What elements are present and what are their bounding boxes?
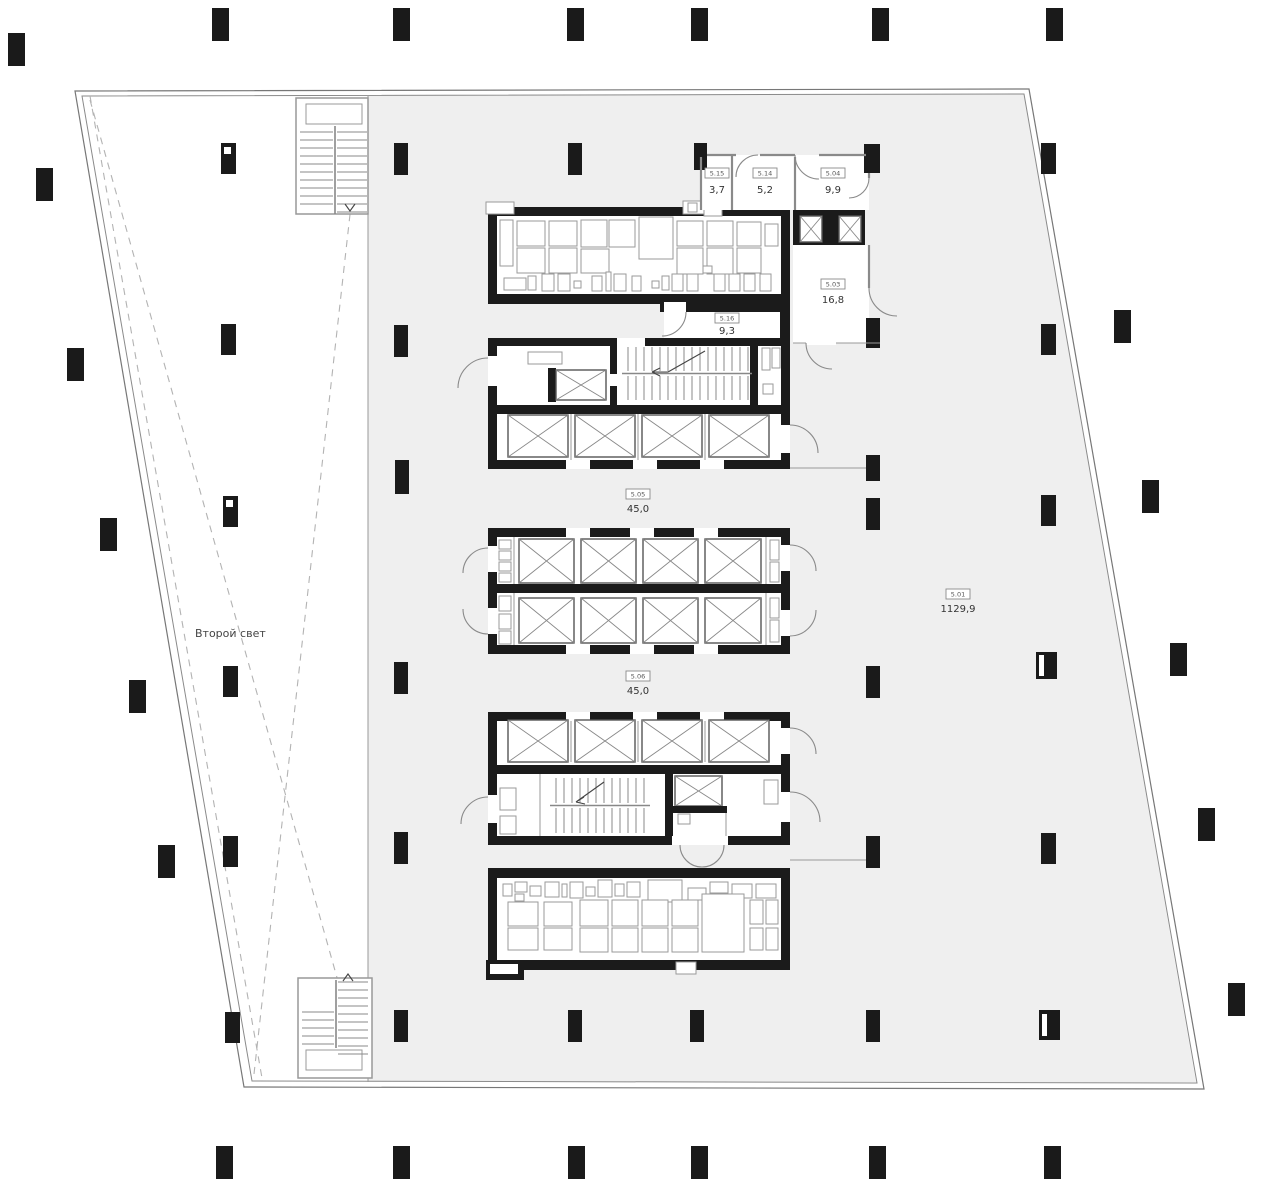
core-top-equipment-room bbox=[486, 201, 790, 304]
svg-text:9,9: 9,9 bbox=[825, 185, 841, 196]
svg-text:9,3: 9,3 bbox=[719, 326, 735, 337]
floor-plan-page: 5.15 3,7 5.14 5,2 5.04 9,9 5.03 16,8 5.1… bbox=[0, 0, 1280, 1180]
svg-text:5.01: 5.01 bbox=[951, 591, 965, 599]
svg-text:5.05: 5.05 bbox=[631, 491, 645, 499]
stairwell-top-left bbox=[296, 98, 368, 214]
elevator-bank-2 bbox=[463, 528, 816, 654]
stairwell-bottom-left bbox=[298, 974, 372, 1078]
elevator-bank-3-and-lower-stairs bbox=[461, 712, 820, 867]
svg-text:5.16: 5.16 bbox=[720, 315, 734, 323]
mid-stair-block bbox=[458, 338, 790, 414]
elevator-bank-1 bbox=[488, 405, 818, 469]
floor-plan-canvas: 5.15 3,7 5.14 5,2 5.04 9,9 5.03 16,8 5.1… bbox=[0, 0, 1280, 1180]
svg-text:45,0: 45,0 bbox=[627, 504, 649, 515]
svg-text:45,0: 45,0 bbox=[627, 686, 649, 697]
svg-text:3,7: 3,7 bbox=[709, 185, 725, 196]
svg-text:1129,9: 1129,9 bbox=[941, 604, 976, 615]
void-area-label: Второй свет bbox=[195, 627, 266, 640]
svg-text:16,8: 16,8 bbox=[822, 295, 844, 306]
svg-text:5.06: 5.06 bbox=[631, 673, 645, 681]
svg-text:5.04: 5.04 bbox=[826, 170, 840, 178]
svg-text:5.15: 5.15 bbox=[710, 170, 724, 178]
svg-text:5,2: 5,2 bbox=[757, 185, 773, 196]
core-bottom-equipment-room bbox=[486, 868, 790, 980]
svg-text:5.14: 5.14 bbox=[758, 170, 772, 178]
svg-text:5.03: 5.03 bbox=[826, 281, 840, 289]
